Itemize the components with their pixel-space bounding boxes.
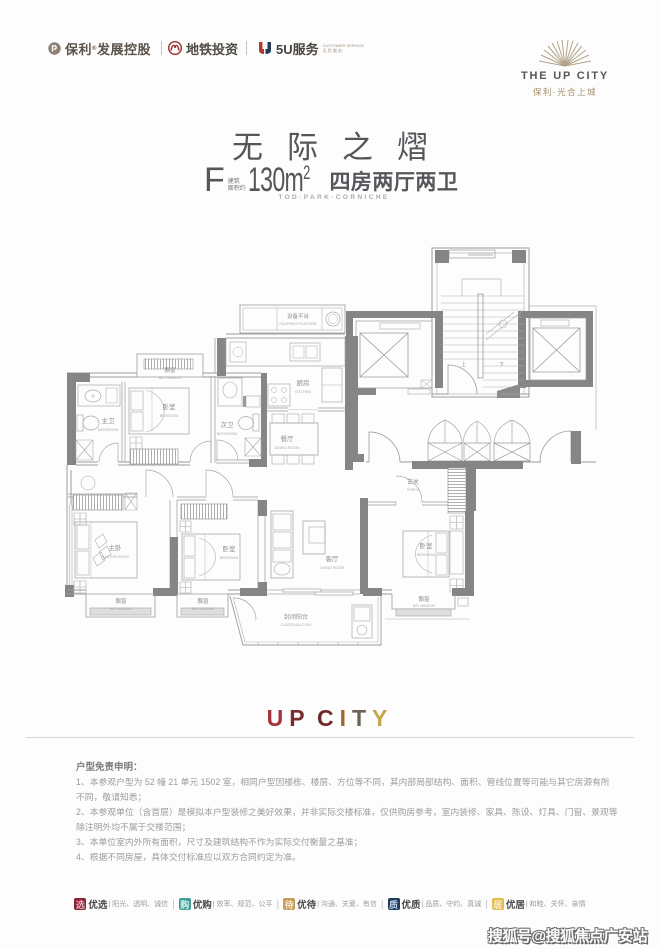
svg-text:厨房: 厨房: [297, 378, 310, 387]
svg-text:PORCH: PORCH: [407, 488, 420, 492]
svg-text:DINING ROOM: DINING ROOM: [275, 446, 300, 450]
svg-text:KITCHEN: KITCHEN: [295, 390, 311, 394]
svg-text:BATHROOM: BATHROOM: [217, 432, 238, 436]
svg-text:BAY WINDOW: BAY WINDOW: [192, 607, 215, 611]
svg-text:BAY WINDOW: BAY WINDOW: [413, 604, 436, 608]
svg-text:设备平台: 设备平台: [287, 312, 310, 320]
svg-text:客厅: 客厅: [326, 554, 340, 563]
svg-text:MASTER ROOM: MASTER ROOM: [101, 555, 128, 559]
svg-text:飘窗: 飘窗: [115, 597, 127, 605]
svg-text:BEDROOM: BEDROOM: [160, 414, 179, 418]
svg-text:LIVING ROOM: LIVING ROOM: [320, 566, 344, 570]
svg-text:封闭阳台: 封闭阳台: [284, 613, 308, 621]
svg-text:BATHROOM: BATHROOM: [98, 428, 119, 432]
svg-text:卧室: 卧室: [420, 541, 434, 550]
svg-text:BAY WINDOW: BAY WINDOW: [159, 376, 182, 380]
svg-text:BAY WINDOW: BAY WINDOW: [110, 607, 133, 611]
svg-text:主卧: 主卧: [109, 543, 123, 552]
svg-text:主卫: 主卫: [102, 416, 116, 425]
svg-text:EQUIPMENT PLATFORM: EQUIPMENT PLATFORM: [280, 322, 317, 326]
svg-text:餐厅: 餐厅: [281, 434, 295, 443]
svg-text:BEDROOM: BEDROOM: [220, 556, 239, 560]
svg-text:飘窗: 飘窗: [197, 597, 209, 605]
svg-text:飘窗: 飘窗: [418, 595, 430, 603]
svg-text:下: 下: [499, 362, 504, 368]
svg-text:上: 上: [461, 361, 466, 368]
svg-text:CLOSED BALCONY: CLOSED BALCONY: [280, 623, 312, 627]
svg-text:次卫: 次卫: [221, 420, 235, 429]
svg-text:卧室: 卧室: [223, 544, 237, 553]
svg-text:飘窗: 飘窗: [164, 366, 176, 374]
svg-text:卧室: 卧室: [163, 402, 177, 411]
svg-text:BEDROOM: BEDROOM: [417, 553, 436, 557]
